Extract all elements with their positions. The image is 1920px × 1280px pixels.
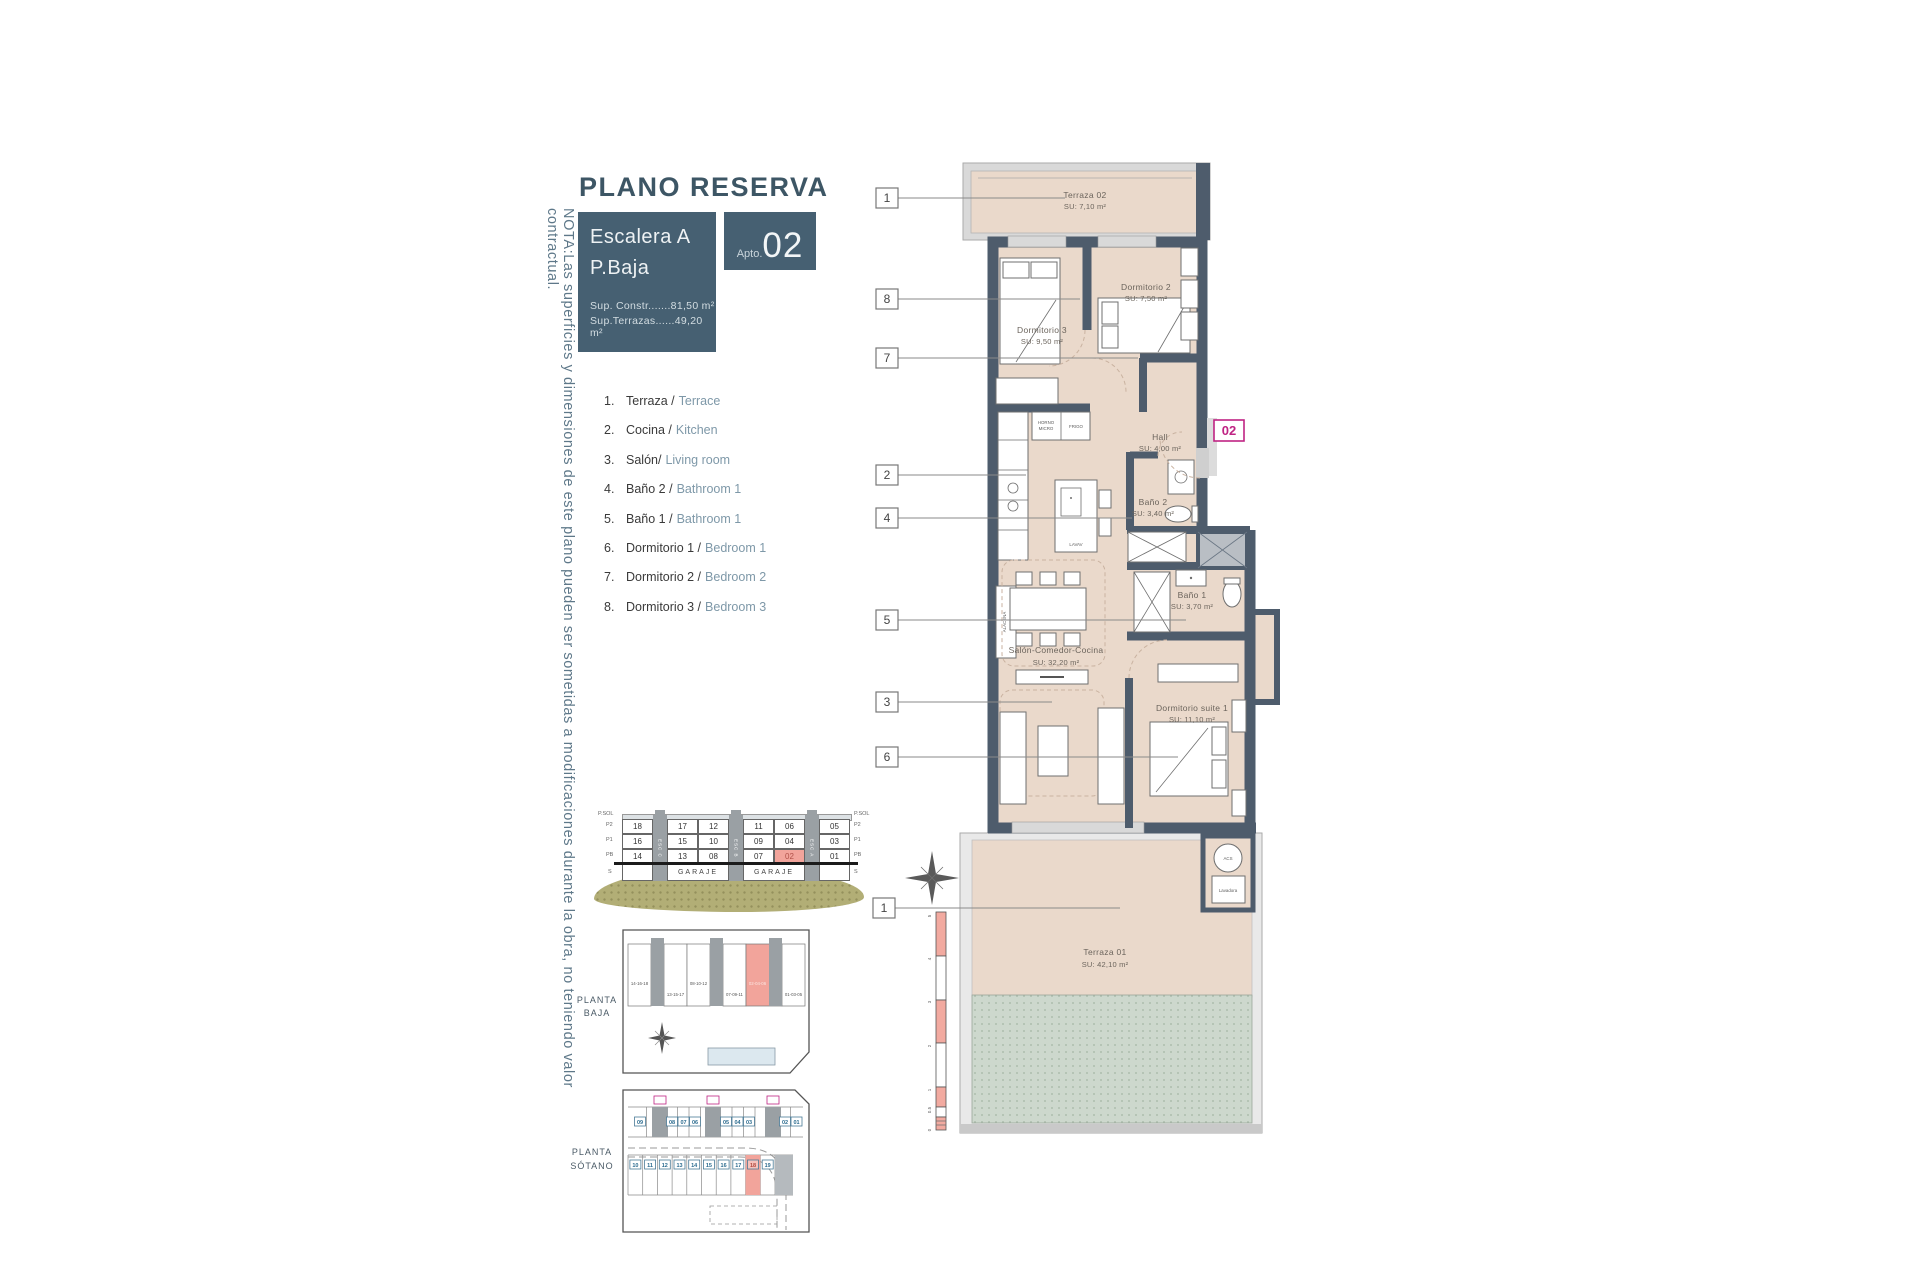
closet-dorm3 [996,378,1058,404]
floor-plan: ACS Lavadora [830,140,1340,1190]
chair [1040,572,1056,585]
svg-text:16: 16 [721,1163,727,1169]
svg-text:MICRO: MICRO [1039,426,1054,431]
terrace-surface: Sup.Terrazas......49,20 m² [590,315,716,339]
stair-tower [705,1107,721,1137]
svg-text:4: 4 [884,511,891,525]
apto-number: 02 [762,226,803,266]
svg-text:SU: 7,10 m²: SU: 7,10 m² [1064,202,1107,211]
stair-tower: ESC A [805,815,819,881]
terrace-pergola-area [972,995,1252,1123]
svg-text:14: 14 [691,1163,698,1169]
svg-text:HORNO: HORNO [1038,420,1055,425]
unit-cell: 06 [774,819,805,834]
svg-text:Dormitorio suite 1: Dormitorio suite 1 [1156,703,1228,713]
svg-text:2: 2 [927,1044,932,1047]
svg-text:02: 02 [782,1120,788,1126]
svg-text:SU: 42,10 m²: SU: 42,10 m² [1082,960,1129,969]
planta-baja-diagram: 14-16-18 13-15-17 08-10-12 07-09-11 02-0… [560,922,860,1082]
chair [1064,572,1080,585]
floor-tag: PB [606,852,613,858]
svg-text:SU: 32,20 m²: SU: 32,20 m² [1033,658,1080,667]
plano-reserva-page: NOTA:Las superficies y dimensiones de es… [0,0,1920,1280]
dresser [1158,664,1238,682]
planta-sotano-label: SÓTANO [570,1161,613,1171]
room-legend: 1.Terraza /Terrace 2.Cocina /Kitchen 3.S… [604,394,834,629]
svg-text:09: 09 [637,1120,643,1126]
svg-text:13: 13 [676,1163,682,1169]
coffee-table [1038,726,1068,776]
stair-tower [652,1107,668,1137]
svg-text:SU: 4,00 m²: SU: 4,00 m² [1139,444,1182,453]
unit-group-label-highlighted: 02-04-06 [749,981,767,986]
legend-item-bano2: 4.Baño 2 /Bathroom 1 [604,482,834,511]
planta-baja-label: PLANTA [577,995,617,1005]
svg-text:ACS: ACS [1223,856,1232,861]
block-cell [687,944,710,1006]
building-section-diagram: 18 17 12 11 06 05 16 15 10 09 04 03 14 1… [622,814,850,886]
unit-cell: 12 [698,819,729,834]
chair [1016,572,1032,585]
legend-item-dorm3: 8.Dormitorio 3 /Bedroom 3 [604,600,834,629]
unit-group-label: 13-15-17 [667,992,685,997]
planta-baja-label: BAJA [584,1008,611,1018]
apartment-number-box: Apto. 02 [724,212,816,270]
svg-text:12: 12 [662,1163,668,1169]
stair-tower [765,1107,781,1137]
svg-text:ALACENA: ALACENA [1002,612,1007,633]
stair-tower [769,938,782,1006]
kitchen-counter [998,412,1028,560]
legend-item-dorm2: 7.Dormitorio 2 /Bedroom 2 [604,570,834,599]
unit-cell: 09 [743,834,774,849]
svg-text:1: 1 [884,191,891,205]
svg-text:5: 5 [884,613,891,627]
stair-badge [707,1096,719,1104]
scale-bar: 5 4 3 2 1 0.5 0 [927,912,946,1131]
floor-tag: P1 [606,837,613,843]
floor-tag: S [608,869,612,875]
svg-text:10: 10 [632,1163,638,1169]
sofa [1098,708,1124,804]
legend-item-dorm1: 6.Dormitorio 1 /Bedroom 1 [604,541,834,570]
garage-label: GARAJE [743,864,805,881]
unit-cell: 04 [774,834,805,849]
svg-text:19: 19 [765,1163,771,1169]
wardrobe [1181,280,1198,308]
compass-icon [905,851,959,905]
svg-text:15: 15 [706,1163,712,1169]
apto-prefix: Apto. [737,248,763,260]
page-title: PLANO RESERVA [579,172,829,203]
svg-text:03: 03 [746,1120,752,1126]
svg-text:2: 2 [884,468,891,482]
planta-sotano-diagram: 09 08 07 06 05 04 03 02 01 10 11 12 13 1… [560,1082,860,1272]
svg-text:6: 6 [884,750,891,764]
stair-tower [651,938,664,1006]
svg-text:Salón-Comedor-Cocina: Salón-Comedor-Cocina [1009,645,1104,655]
stair-tower [710,938,723,1006]
svg-text:SU: 3,40 m²: SU: 3,40 m² [1132,509,1175,518]
svg-text:SU: 11,10 m²: SU: 11,10 m² [1169,715,1215,724]
sofa [1000,712,1026,804]
svg-text:FRIGO: FRIGO [1069,424,1083,429]
svg-text:Terraza 01: Terraza 01 [1083,947,1126,957]
wardrobe [1181,248,1198,276]
svg-text:0.5: 0.5 [927,1106,932,1113]
unit-group-label: 14-16-18 [631,981,649,986]
block-cell [628,944,651,1006]
svg-text:Hall: Hall [1152,432,1168,442]
svg-text:3: 3 [927,1000,932,1003]
svg-text:17: 17 [735,1163,741,1169]
unit-group-label: 08-10-12 [690,981,708,986]
entrance-door-opening [1196,448,1209,478]
stool [1099,490,1111,508]
unit-cell: 16 [622,834,653,849]
built-surface: Sup. Constr.......81,50 m² [590,300,716,312]
svg-text:Terraza 02: Terraza 02 [1063,190,1106,200]
svg-text:3: 3 [884,695,891,709]
unit-cell: 11 [743,819,774,834]
svg-text:Lavadora: Lavadora [1219,888,1238,893]
unit-group-label: 01-03-05 [785,992,803,997]
stair-floor-box: Escalera A P.Baja Sup. Constr.......81,5… [578,212,716,352]
svg-text:Dormitorio 2: Dormitorio 2 [1121,282,1171,292]
svg-text:SU: 3,70 m²: SU: 3,70 m² [1171,602,1214,611]
stair-tower: ESC B [729,815,743,881]
nightstand [1232,700,1246,732]
svg-text:18: 18 [750,1163,756,1169]
unit-cell: 15 [667,834,698,849]
svg-text:Baño 2: Baño 2 [1139,497,1168,507]
svg-text:01: 01 [793,1120,799,1126]
nightstand [1232,790,1246,816]
utility-closet: ACS Lavadora [1203,836,1253,910]
garage-cell [622,864,653,881]
legend-item-bano1: 5.Baño 1 /Bathroom 1 [604,512,834,541]
stair-badge [767,1096,779,1104]
floor-tag: P2 [606,822,613,828]
svg-text:4: 4 [927,957,932,960]
apartment-badge: 02 [1214,420,1244,441]
floor-tag: P.SOL [598,811,614,817]
svg-text:11: 11 [647,1163,653,1169]
svg-text:0: 0 [927,1128,932,1131]
svg-text:1: 1 [881,901,888,915]
stair-tower: ESC C [653,815,667,881]
legend-item-salon: 3.Salón/Living room [604,453,834,482]
stair-label: Escalera A [590,226,716,249]
svg-text:07: 07 [680,1120,686,1126]
toilet [1223,581,1241,607]
legend-item-cocina: 2.Cocina /Kitchen [604,423,834,452]
pool [708,1048,775,1065]
svg-text:Dormitorio 3: Dormitorio 3 [1017,325,1067,335]
svg-text:8: 8 [884,292,891,306]
stool [1099,518,1111,536]
svg-text:LAVAV: LAVAV [1069,542,1082,547]
garage-label: GARAJE [667,864,729,881]
street-level-line [614,862,858,865]
dining-table [1010,588,1086,630]
svg-text:SU: 7,50 m²: SU: 7,50 m² [1125,294,1168,303]
svg-text:7: 7 [884,351,891,365]
svg-text:SU: 9,50 m²: SU: 9,50 m² [1021,337,1064,346]
unit-group-label: 07-09-11 [726,992,743,997]
planta-sotano-label: PLANTA [572,1147,612,1157]
svg-text:5: 5 [927,914,932,917]
installation-shaft [1198,532,1247,568]
legend-item-terraza: 1.Terraza /Terrace [604,394,834,423]
svg-text:Baño 1: Baño 1 [1178,590,1207,600]
unit-cell: 10 [698,834,729,849]
svg-text:04: 04 [734,1120,741,1126]
svg-text:06: 06 [692,1120,698,1126]
unit-cell: 18 [622,819,653,834]
unit-cell: 17 [667,819,698,834]
floor-label: P.Baja [590,257,716,280]
svg-text:02: 02 [1222,423,1236,438]
stair-badge [654,1096,666,1104]
svg-text:1: 1 [927,1088,932,1091]
wardrobe [1181,312,1198,340]
svg-text:05: 05 [723,1120,729,1126]
ramp-block [775,1155,793,1195]
svg-text:08: 08 [669,1120,675,1126]
